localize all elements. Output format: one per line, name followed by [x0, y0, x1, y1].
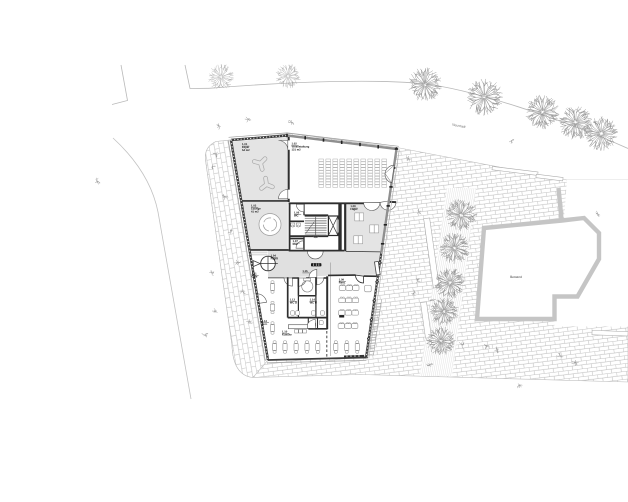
svg-text:Flur: Flur: [293, 243, 298, 246]
svg-text:Kueche: Kueche: [282, 333, 292, 336]
svg-text:Cafe: Cafe: [252, 275, 258, 278]
svg-text:WC D: WC D: [290, 302, 297, 305]
svg-text:54 m2: 54 m2: [242, 149, 250, 152]
svg-text:Rest.: Rest.: [339, 281, 346, 284]
svg-text:41 m2: 41 m2: [251, 211, 259, 214]
svg-text:WC H: WC H: [310, 302, 317, 305]
svg-text:Foyer: Foyer: [271, 257, 278, 260]
svg-text:WC: WC: [294, 214, 299, 217]
svg-text:121 m2: 121 m2: [292, 149, 302, 152]
svg-text:Lager: Lager: [350, 208, 357, 211]
svg-text:Terr.: Terr.: [262, 323, 268, 326]
svg-text:1.15: 1.15: [302, 270, 308, 273]
svg-text:Bestand: Bestand: [510, 275, 522, 279]
